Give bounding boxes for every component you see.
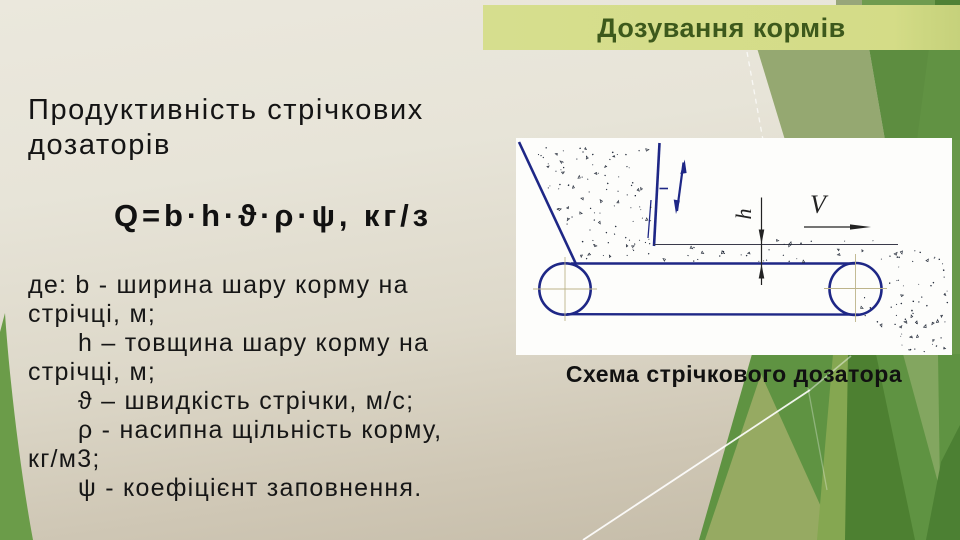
svg-text:h: h: [731, 209, 756, 220]
svg-text:V: V: [810, 190, 829, 219]
